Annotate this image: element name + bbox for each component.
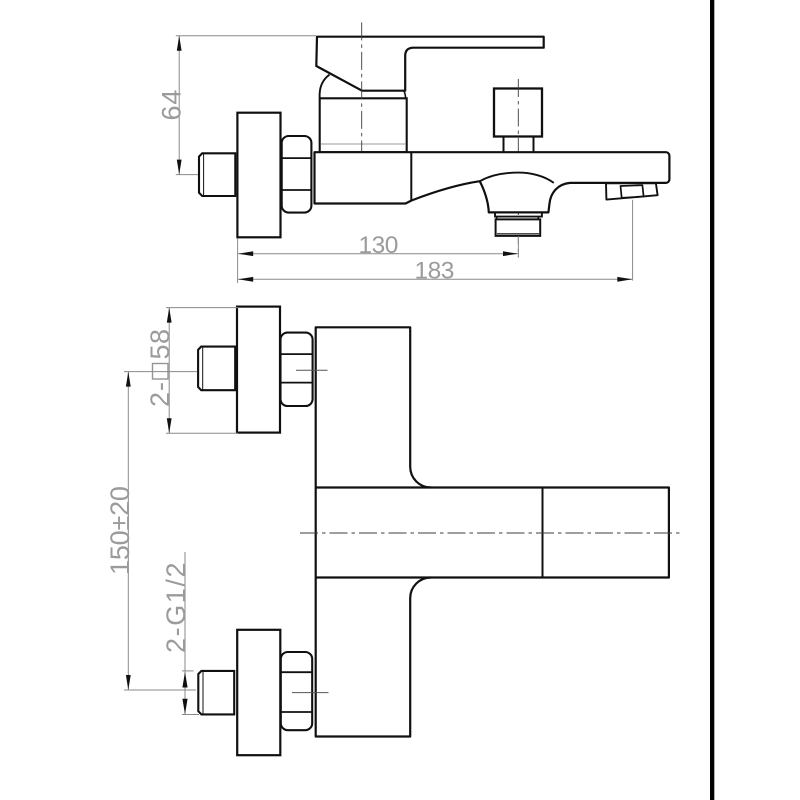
svg-text:2-: 2- [145, 381, 175, 407]
svg-text:58: 58 [145, 328, 175, 359]
svg-text:2-G1/2: 2-G1/2 [161, 561, 191, 653]
svg-text:64: 64 [157, 89, 187, 121]
svg-text:183: 183 [415, 258, 454, 285]
svg-text:150±20: 150±20 [105, 486, 135, 575]
svg-text:130: 130 [359, 232, 398, 259]
